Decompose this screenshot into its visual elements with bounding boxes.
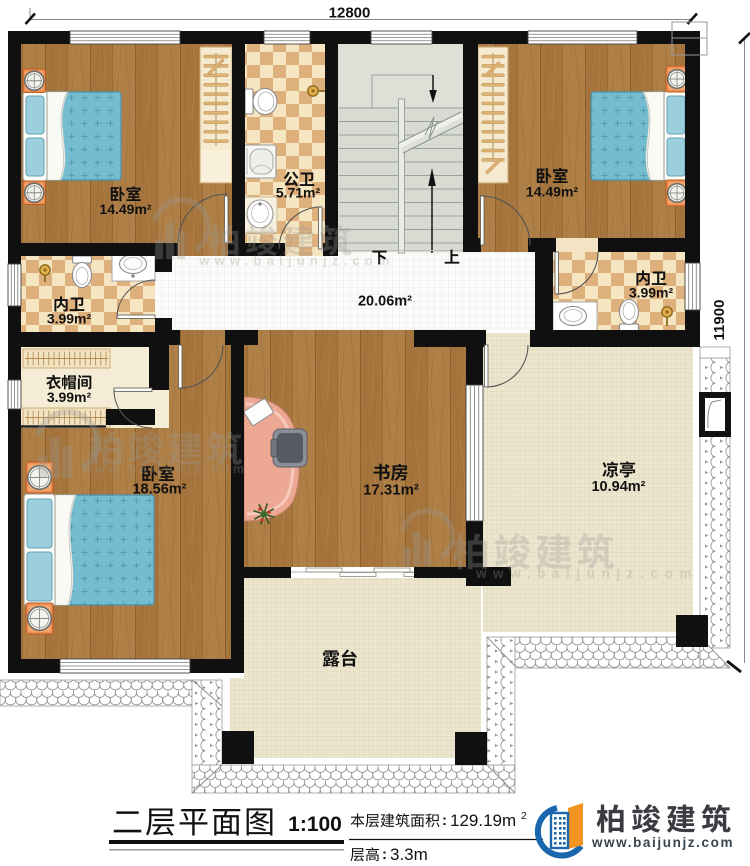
svg-text:www.baijunjz.com: www.baijunjz.com <box>591 835 734 850</box>
svg-text:20.06m²: 20.06m² <box>358 294 412 310</box>
svg-text:12800: 12800 <box>329 5 371 22</box>
svg-text:2: 2 <box>521 810 527 822</box>
svg-text:129.19m: 129.19m <box>450 811 516 830</box>
svg-text:1:100: 1:100 <box>288 813 342 836</box>
svg-text:5.71m²: 5.71m² <box>276 185 321 201</box>
svg-text:3.3m: 3.3m <box>390 845 428 864</box>
svg-text:3.99m²: 3.99m² <box>47 311 92 327</box>
svg-text::: : <box>442 812 447 829</box>
svg-text:www.baijunjz.com: www.baijunjz.com <box>475 566 698 581</box>
svg-text:3.99m²: 3.99m² <box>47 389 92 405</box>
svg-text:18.56m²: 18.56m² <box>132 482 186 498</box>
svg-text:14.49m²: 14.49m² <box>99 201 151 217</box>
svg-text:www.baijunjz.com: www.baijunjz.com <box>198 253 394 268</box>
svg-text:17.31m²: 17.31m² <box>363 482 419 499</box>
svg-text:14.49m²: 14.49m² <box>526 184 578 200</box>
svg-text:3.99m²: 3.99m² <box>629 285 674 301</box>
svg-text:www.baijunjz.com: www.baijunjz.com <box>81 462 247 476</box>
svg-text:10.94m²: 10.94m² <box>591 479 645 495</box>
svg-text::: : <box>382 846 387 863</box>
svg-text:11900: 11900 <box>711 300 728 341</box>
